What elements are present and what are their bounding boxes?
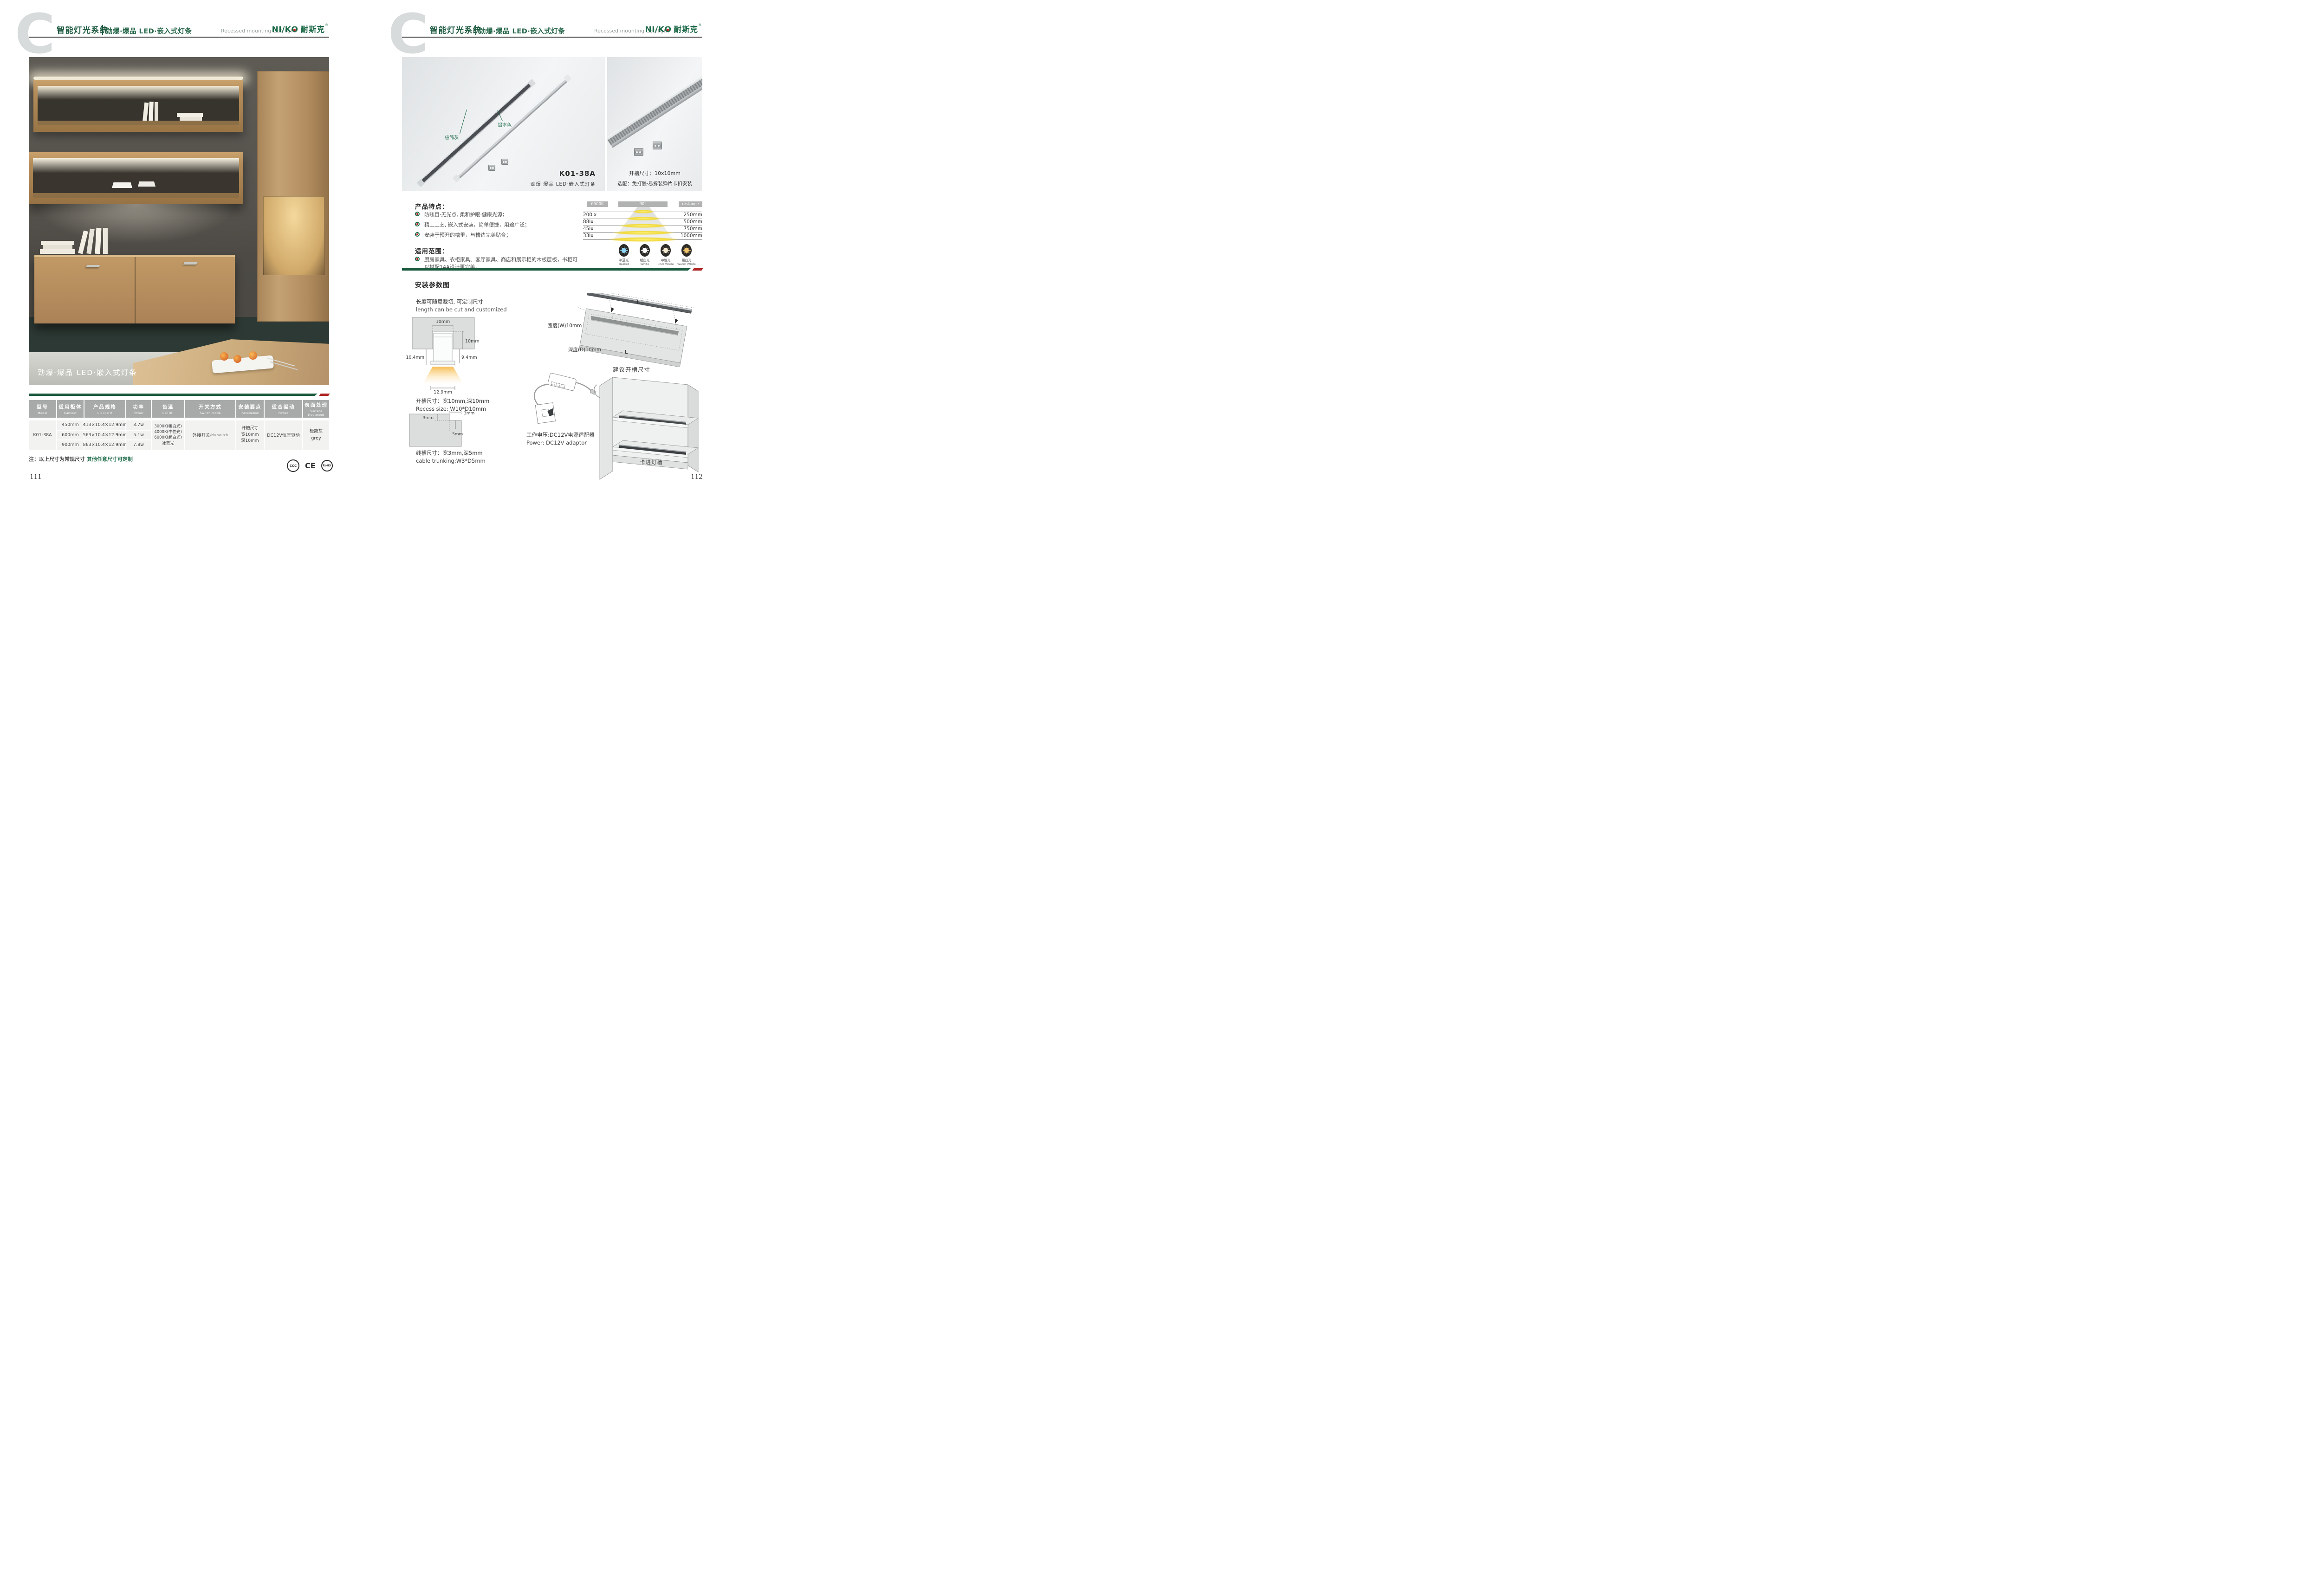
sideboard-divider	[135, 257, 136, 323]
distance-value: 500mm	[684, 219, 703, 225]
shelf-a-led-glow	[38, 86, 239, 100]
distance-chip: distance	[679, 201, 702, 207]
scope-title: 适用范围：	[415, 246, 449, 255]
title-divider	[475, 25, 476, 35]
product-photo-main: 极简灰 铝本色 K01-38A 劲爆·爆品 LED·嵌入式灯条	[402, 57, 605, 191]
cell-power: 7.8w	[126, 440, 151, 450]
strip-end-cap	[564, 74, 572, 83]
shelf-b-board	[33, 193, 239, 198]
brand-logo: NI/KO 耐斯克®	[645, 23, 701, 34]
photo-shelf-unit-b	[29, 152, 243, 204]
header-rule	[402, 37, 702, 38]
table-header: 适用柜体Cabinet	[57, 400, 84, 418]
white-light-icon	[640, 244, 650, 257]
photo-caption: 劲爆·爆品 LED·嵌入式灯条	[38, 367, 137, 377]
photo-shelf-unit-a	[33, 80, 243, 132]
led-glow-top	[33, 77, 243, 80]
board-width-label: 宽度(W)10mm	[548, 322, 582, 329]
strip-end-cap	[528, 79, 536, 87]
peach	[233, 355, 241, 363]
distance-value: 750mm	[684, 226, 703, 232]
led-strip-gray	[421, 83, 532, 183]
model-number: K01-38A	[559, 169, 596, 178]
product-photo-detail: 开槽尺寸：10x10mm 选配：免打胶·易拆装弹片卡扣安装	[607, 57, 702, 191]
book	[143, 103, 149, 123]
light-pool	[609, 237, 678, 242]
cell-power: 5.1w	[126, 431, 151, 440]
page-subtitle: 劲爆·爆品 LED·嵌入式灯条	[106, 26, 192, 36]
cell-cct: 3000K(暖白光) 4000K(中性光) 6000K(超白光) 冰蓝光	[152, 420, 184, 450]
strip-end-cap	[417, 179, 425, 187]
feature-item: 安装于预开的槽里，与槽边完美贴合；	[424, 231, 511, 239]
color-label-aluminum: 铝本色	[498, 121, 512, 128]
mounting-clip	[653, 142, 662, 149]
trunk-cn: 线槽尺寸：宽3mm,深5mm	[416, 449, 483, 457]
board-length-label-2: L	[625, 349, 628, 355]
shelf-b-interior	[33, 158, 239, 198]
cut-note-cn: 长度可随意裁切, 可定制尺寸	[416, 298, 483, 305]
trunk-dim-left: 3mm	[423, 416, 434, 420]
note-text: 注：以上尺寸为常规尺寸	[29, 456, 87, 462]
book	[149, 102, 154, 123]
photometric-diagram: 6500K 90° distance 200lx 88lx 45lx 33lx …	[583, 201, 702, 266]
label-leader-line	[460, 110, 467, 134]
dim-bottom: 12.9mm	[434, 390, 452, 394]
cell-switch: 外接开关/No switch	[185, 420, 235, 450]
page-number: 112	[691, 473, 703, 481]
spec-table-header: 型号Model 适用柜体Cabinet 产品规格L x D x H 功率Powe…	[29, 400, 329, 418]
logo-latin: NI/K	[645, 25, 665, 34]
separator-red	[692, 268, 703, 271]
icon-label-en: Warm White	[674, 262, 699, 266]
peach	[220, 352, 228, 361]
cell-cabinet: 450mm	[57, 420, 84, 430]
decorative-letter-c: C	[15, 6, 55, 61]
brand-logo: NI/KO 耐斯克®	[272, 23, 328, 34]
feature-item: 防眩目·无光点, 柔和护眼·健康光源；	[424, 211, 507, 218]
groove-board-diagram	[576, 293, 700, 371]
power-cn: 工作电压:DC12V电源适配器	[526, 431, 595, 439]
table-header: 安装要点Installation	[236, 400, 264, 418]
right-page: C 智能灯光系统 劲爆·爆品 LED·嵌入式灯条 Recessed mounti…	[402, 0, 702, 499]
book-stack	[40, 249, 75, 254]
cell-install: 开槽尺寸 宽10mm 深10mm	[236, 420, 264, 450]
cell-spec: 863×10.4×12.9mm	[84, 440, 125, 450]
bullet-icon	[415, 257, 420, 261]
shelf-a-board	[38, 121, 239, 125]
rohs-cert-icon: RoHS	[321, 460, 333, 472]
spec-table-body: K01-38A 450mm 413×10.4×12.9mm 3.7w 3000K…	[29, 420, 329, 450]
logo-o-mark: O	[291, 25, 298, 34]
cell-surface: 极简灰 grey	[303, 420, 329, 450]
logo-latin: NI/K	[272, 25, 292, 34]
cell-cabinet: 900mm	[57, 440, 84, 450]
page-title: 智能灯光系统	[57, 24, 108, 36]
cell-model: K01-38A	[29, 420, 56, 450]
separator-green	[29, 394, 318, 396]
trunk-dim-top: 3mm	[464, 411, 474, 416]
wall-glow-under-shelf	[36, 204, 236, 244]
led-strip-aluminum	[457, 78, 567, 179]
lux-value: 45lx	[583, 226, 594, 232]
table-header: 适合驱动Power	[265, 400, 302, 418]
bullet-icon	[415, 222, 420, 226]
table-header: 开关方式Switch mode	[185, 400, 235, 418]
install-title: 安装参数图	[415, 280, 450, 290]
dim-top: 10mm	[436, 319, 450, 324]
book-stack	[43, 245, 72, 249]
beam-angle-chip: 90°	[618, 201, 668, 207]
trunk-en: cable trunking:W3*D5mm	[416, 458, 486, 464]
bullet-icon	[415, 232, 420, 237]
power-en: Power: DC12V adaptor	[526, 439, 587, 446]
strip-end-cap	[453, 174, 461, 182]
cell-power: 3.7w	[126, 420, 151, 430]
features-title: 产品特点：	[415, 201, 449, 211]
table-header: 表面处理Surface treatment	[303, 400, 329, 418]
lux-value: 200lx	[583, 212, 596, 218]
option-text: 选配：免打胶·易拆装弹片卡扣安装	[607, 180, 702, 187]
trunk-dim-depth: 5mm	[452, 432, 463, 437]
decorative-letter-c: C	[388, 6, 428, 61]
hero-photo: 劲爆·爆品 LED·嵌入式灯条	[29, 57, 329, 385]
peach	[249, 351, 257, 360]
bullet-icon	[415, 212, 420, 216]
table-header: 产品规格L x D x H	[84, 400, 125, 418]
model-caption: 劲爆·爆品 LED·嵌入式灯条	[531, 181, 596, 187]
light-pool	[633, 210, 654, 213]
ice-blue-light-icon	[619, 244, 629, 257]
drawer-handle	[183, 262, 198, 265]
note-highlight: 其他任意尺寸可定制	[87, 456, 133, 462]
book-stack	[41, 241, 74, 245]
dim-left: 10.4mm	[406, 355, 424, 360]
cct-chip: 6500K	[587, 201, 608, 207]
cross-section-diagram: 10mm 10mm 9.9mm 10.4mm 9.4mm 12.9mm	[406, 315, 503, 394]
page-number: 111	[30, 473, 42, 481]
dim-depth: 10mm	[465, 339, 480, 344]
power-adaptor-illustration	[527, 369, 597, 428]
table-header: 型号Model	[29, 400, 56, 418]
table-note: 注：以上尺寸为常规尺寸 其他任意尺寸可定制	[29, 455, 133, 463]
shelf-b-led-glow	[33, 158, 239, 173]
cabinet-label: 卡进灯槽	[640, 459, 663, 466]
color-label-gray: 极简灰	[445, 134, 459, 141]
lux-value: 88lx	[583, 219, 594, 225]
registered-mark-icon: ®	[325, 23, 328, 27]
board-depth-label: 深度(D)10mm	[568, 346, 601, 353]
logo-chinese: 耐斯克	[674, 25, 699, 34]
cut-note-en: length can be cut and customized	[416, 306, 507, 313]
book-stack	[177, 113, 203, 117]
board-length-label: L	[637, 299, 640, 305]
leaning-book	[103, 228, 108, 254]
recess-size-text: 开槽尺寸：10x10mm	[607, 169, 702, 177]
distance-value: 250mm	[684, 212, 703, 218]
table-header: 色温CCT(K)	[152, 400, 184, 418]
separator-red	[319, 394, 330, 396]
table-header: 功率Power	[126, 400, 151, 418]
cell-drive: DC12V恒压驱动	[265, 420, 302, 450]
mounting-clip	[488, 165, 495, 171]
cable-trunking-diagram: 3mm 3mm 5mm	[406, 410, 494, 449]
cell-spec: 413×10.4×12.9mm	[84, 420, 125, 430]
certifications: CCC CE RoHS	[287, 459, 333, 472]
title-divider	[102, 25, 103, 35]
distance-value: 1000mm	[681, 233, 702, 239]
mounting-clip	[634, 148, 643, 156]
photo-sideboard	[34, 255, 235, 323]
cell-spec: 563×10.4×12.9mm	[84, 431, 125, 440]
page-subtitle: 劲爆·爆品 LED·嵌入式灯条	[479, 26, 565, 36]
photo-cabinet-lit-shelf	[263, 196, 324, 275]
ce-cert-icon: CE	[305, 461, 316, 470]
white-dish	[138, 181, 156, 187]
left-page: C 智能灯光系统 劲爆·爆品 LED·嵌入式灯条 Recessed mounti…	[29, 0, 329, 499]
logo-chinese: 耐斯克	[301, 25, 325, 34]
recess-cn: 开槽尺寸：宽10mm,深10mm	[416, 397, 489, 405]
book	[155, 102, 158, 123]
drawer-handle	[86, 265, 100, 267]
cell-cabinet: 600mm	[57, 431, 84, 440]
cool-white-light-icon	[661, 244, 671, 257]
profile-ribbed-body	[608, 78, 702, 145]
header-rule	[29, 37, 329, 38]
dim-right: 9.4mm	[461, 355, 477, 360]
aluminum-profile	[607, 76, 702, 148]
ccc-cert-icon: CCC	[287, 459, 299, 472]
lux-value: 33lx	[583, 233, 594, 239]
separator-green	[402, 268, 691, 271]
light-pool	[619, 224, 668, 228]
light-cone-amber	[422, 367, 463, 384]
white-dish	[112, 182, 132, 188]
feature-item: 精工工艺, 嵌入式安装，简单便捷，用途广泛；	[424, 221, 530, 228]
light-pool	[613, 231, 674, 235]
warm-white-light-icon	[681, 244, 692, 257]
leaning-book	[95, 228, 102, 254]
shelf-a-interior	[38, 86, 239, 125]
mounting-clip	[501, 159, 508, 165]
cabinet-illustration	[594, 369, 702, 485]
light-pool	[626, 217, 661, 220]
logo-o-mark: O	[664, 25, 671, 34]
page-title: 智能灯光系统	[430, 24, 481, 36]
registered-mark-icon: ®	[698, 23, 701, 27]
